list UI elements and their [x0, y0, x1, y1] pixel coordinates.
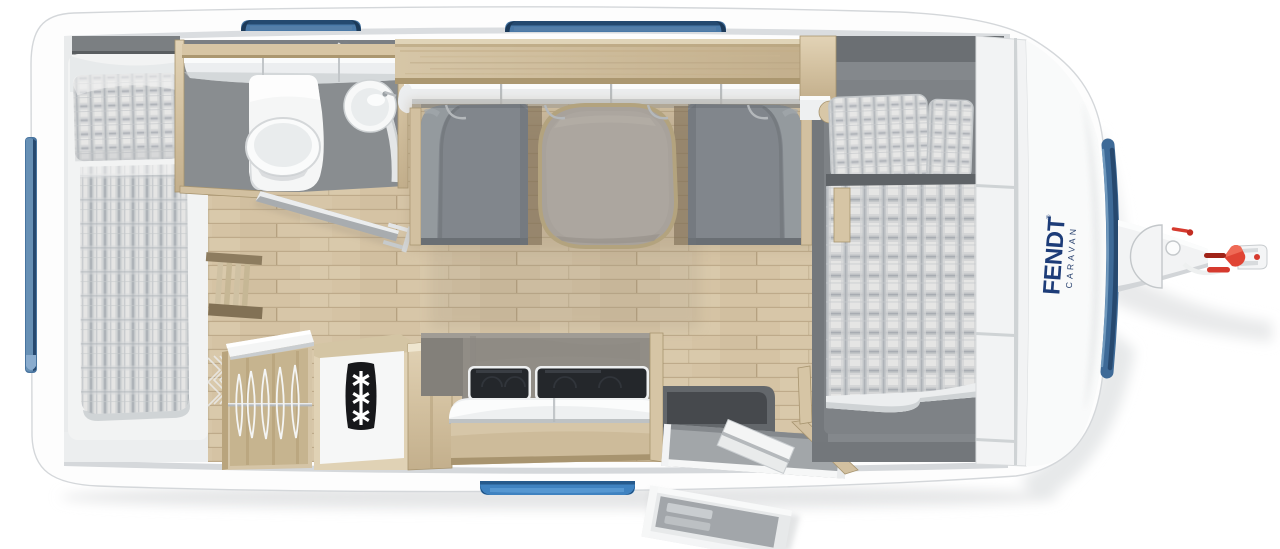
svg-text:®: ® [1045, 214, 1053, 220]
